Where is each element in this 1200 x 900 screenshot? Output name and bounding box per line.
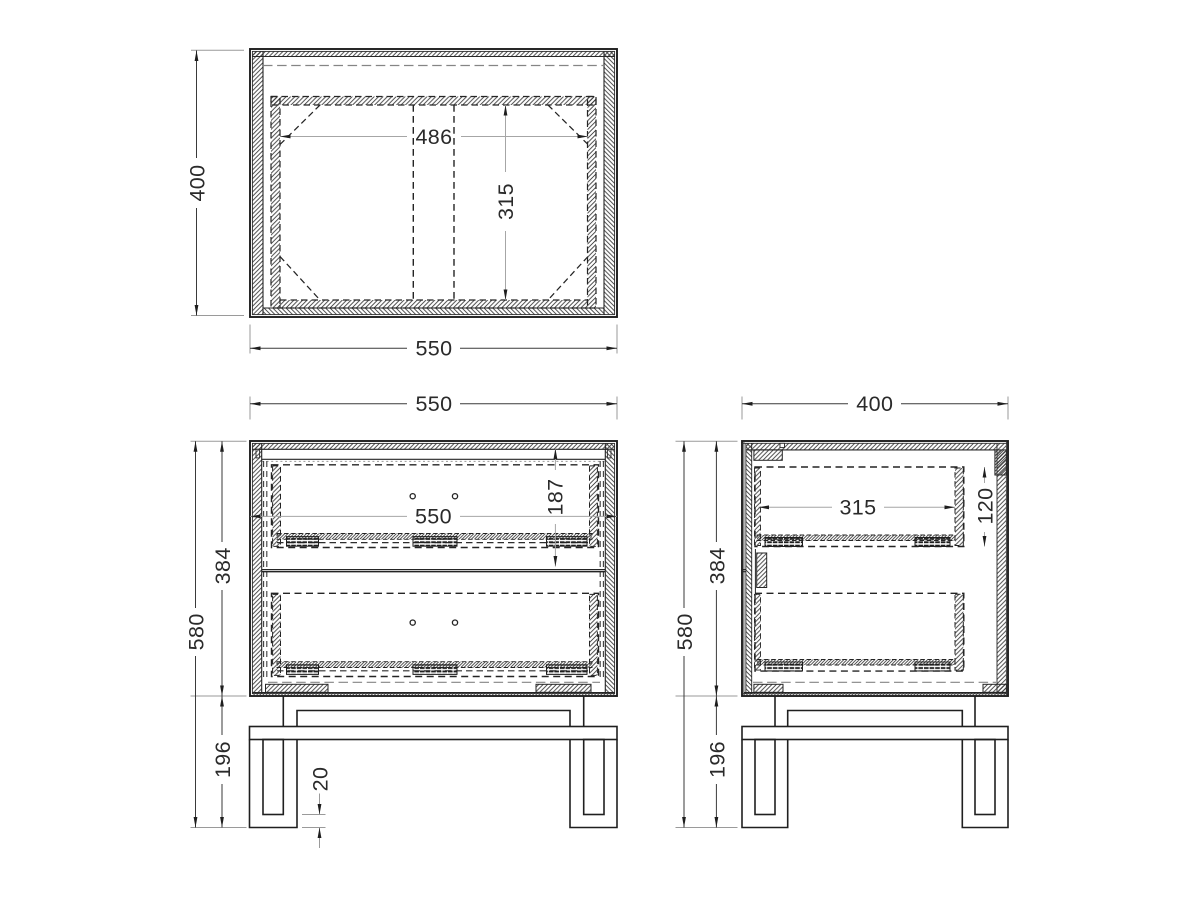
svg-text:580: 580 [673, 613, 697, 650]
svg-text:580: 580 [185, 613, 209, 650]
svg-text:384: 384 [211, 547, 235, 584]
svg-text:196: 196 [211, 741, 235, 778]
svg-text:384: 384 [706, 547, 730, 584]
svg-text:196: 196 [706, 741, 730, 778]
svg-text:486: 486 [415, 125, 452, 149]
svg-text:20: 20 [308, 767, 332, 792]
svg-text:315: 315 [494, 183, 518, 220]
svg-text:400: 400 [856, 392, 893, 416]
svg-text:550: 550 [415, 505, 452, 529]
svg-text:400: 400 [185, 164, 209, 201]
svg-text:315: 315 [839, 496, 876, 520]
svg-text:120: 120 [974, 487, 998, 524]
svg-text:550: 550 [415, 392, 452, 416]
svg-text:187: 187 [544, 478, 568, 515]
svg-text:550: 550 [415, 337, 452, 361]
